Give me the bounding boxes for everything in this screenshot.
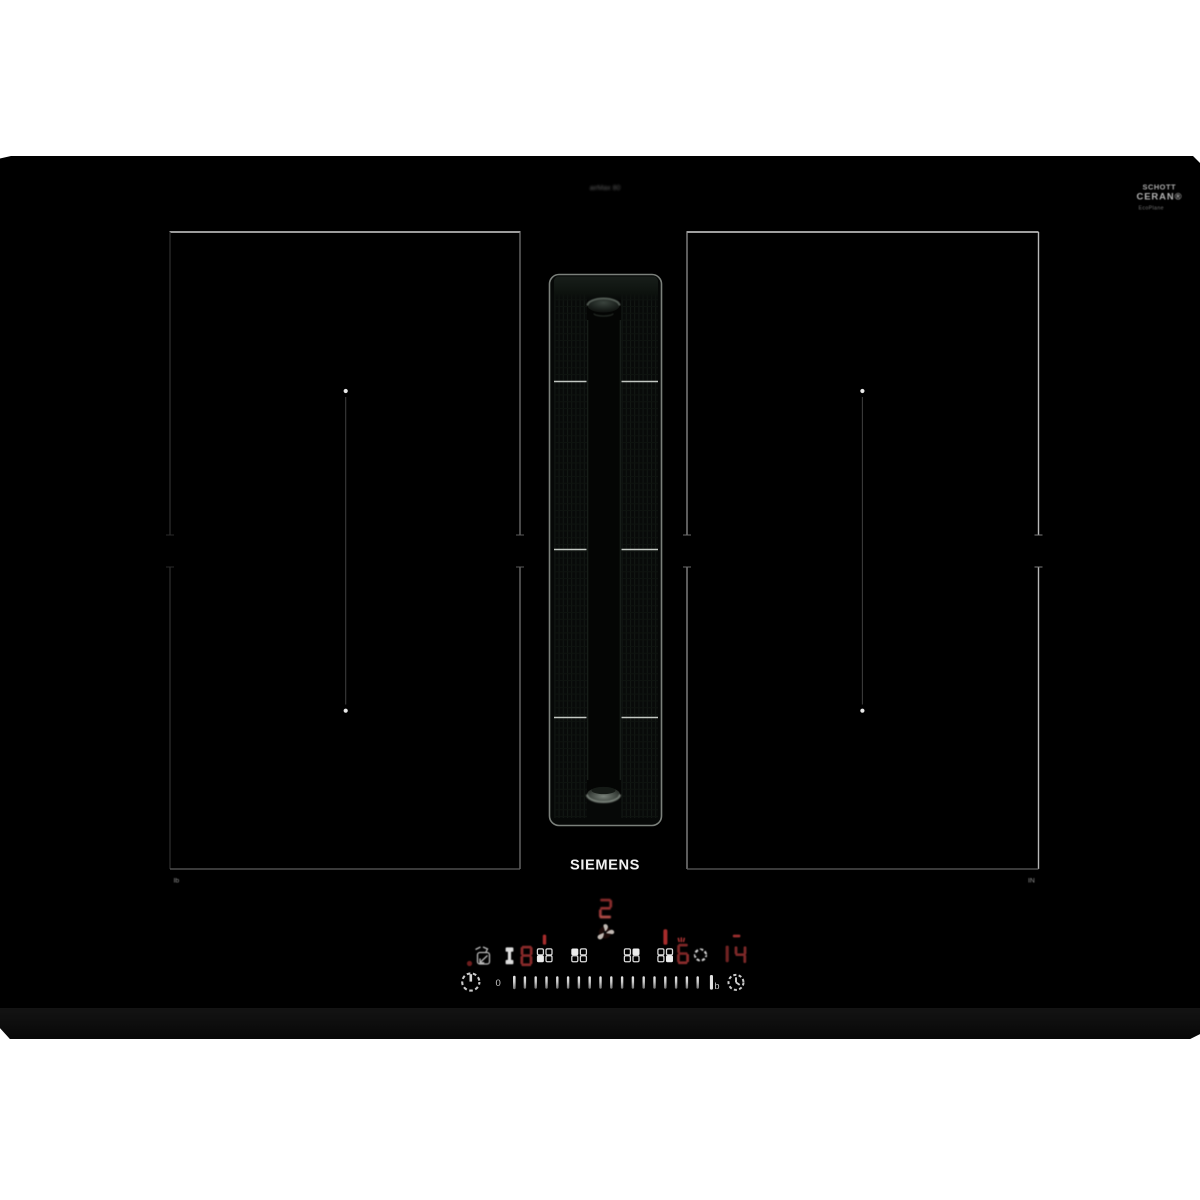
svg-text:IN: IN [1028,878,1035,885]
svg-text:b: b [715,981,720,991]
svg-text:EcoPlane: EcoPlane [1139,206,1164,212]
svg-text:SIEMENS: SIEMENS [570,857,640,874]
svg-text:CERAN®: CERAN® [1137,191,1182,202]
svg-text:airMax 80: airMax 80 [590,185,621,192]
svg-text:Ib: Ib [174,878,180,885]
svg-text:0: 0 [496,978,501,989]
